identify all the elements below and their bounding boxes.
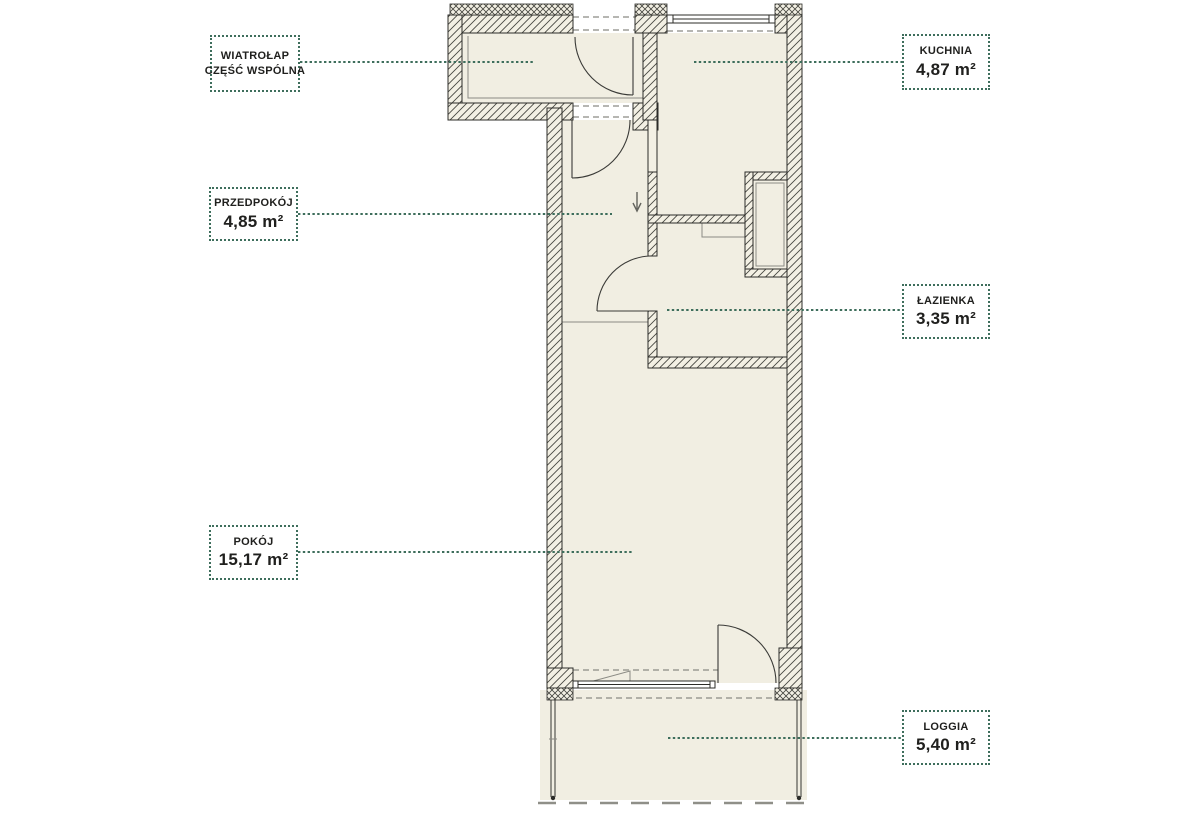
loggia-area <box>538 690 810 803</box>
room-area: 4,85 m² <box>224 212 284 232</box>
room-name: LOGGIA <box>923 720 968 734</box>
room-name: PRZEDPOKÓJ <box>214 196 293 210</box>
room-name: ŁAZIENKA <box>917 294 975 308</box>
room-label-lazienka: ŁAZIENKA 3,35 m² <box>902 284 990 339</box>
room-label-loggia: LOGGIA 5,40 m² <box>902 710 990 765</box>
floor-plan-drawing <box>0 0 1200 813</box>
room-area: 15,17 m² <box>219 550 289 570</box>
room-window <box>573 681 715 688</box>
room-name-line2: CZĘŚĆ WSPÓLNA <box>205 64 305 78</box>
kitchen-window <box>667 15 775 23</box>
room-name: POKÓJ <box>233 535 273 549</box>
room-name: KUCHNIA <box>920 44 973 58</box>
room-label-kuchnia: KUCHNIA 4,87 m² <box>902 34 990 90</box>
room-label-przedpokoj: PRZEDPOKÓJ 4,85 m² <box>209 187 298 241</box>
room-name: WIATROŁAP <box>221 49 290 63</box>
room-area: 3,35 m² <box>916 309 976 329</box>
floor-plan-page: WIATROŁAP CZĘŚĆ WSPÓLNA KUCHNIA 4,87 m² … <box>0 0 1200 813</box>
room-area: 4,87 m² <box>916 60 976 80</box>
room-area: 5,40 m² <box>916 735 976 755</box>
room-label-pokoj: POKÓJ 15,17 m² <box>209 525 298 580</box>
duct-shaft <box>745 172 787 277</box>
room-label-wiatrolap: WIATROŁAP CZĘŚĆ WSPÓLNA <box>210 35 300 92</box>
